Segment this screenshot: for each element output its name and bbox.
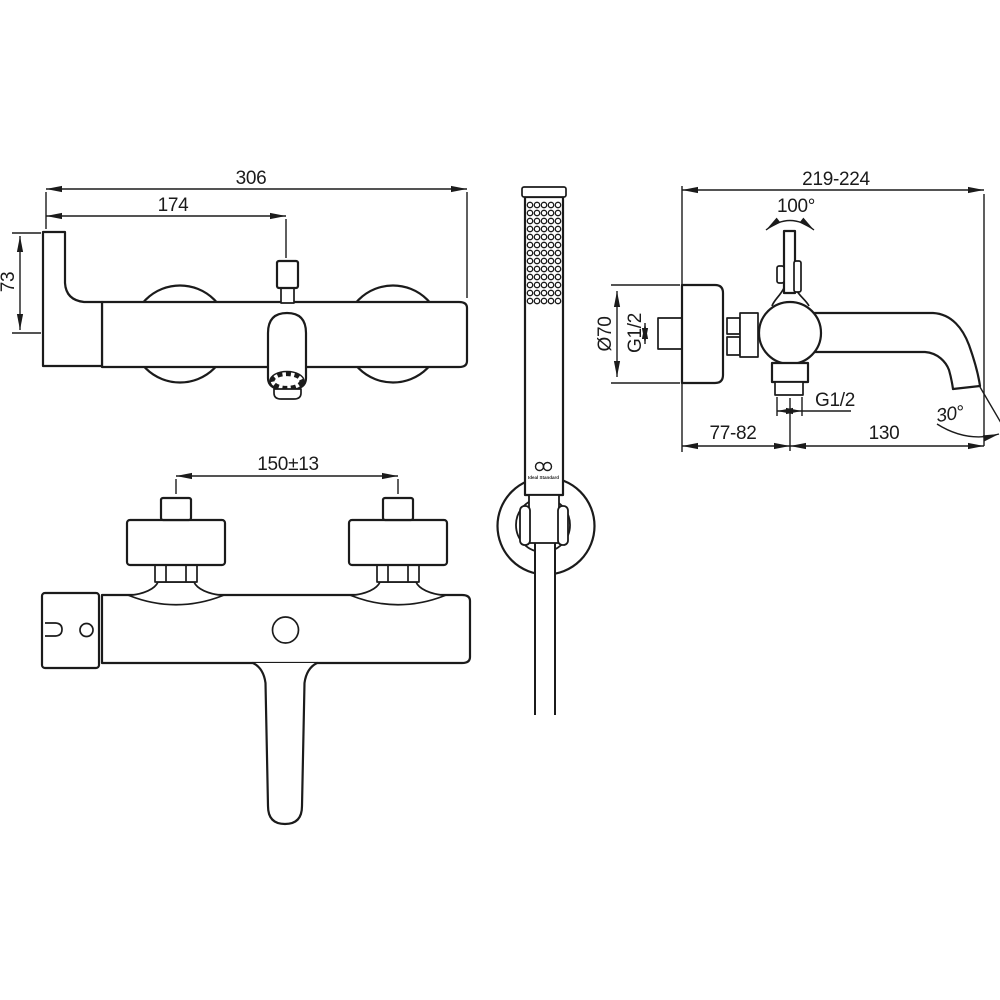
diverter-neck	[281, 287, 294, 303]
spout-angle-arc	[937, 424, 999, 437]
dim-outlet-thread: G1/2	[815, 390, 855, 411]
dim-overall-width: 306	[236, 168, 267, 189]
spout-plan	[253, 663, 317, 824]
dim-inlet-centres: 150±13	[257, 454, 318, 475]
shower-hose	[535, 543, 555, 715]
diverter-knob	[277, 261, 298, 288]
logo-text: Ideal Standard	[528, 475, 559, 480]
dim-wall-to-outlet: 77-82	[709, 423, 756, 444]
lever-side	[772, 231, 809, 306]
spout-side	[814, 313, 980, 389]
dim-spout-angle: 30°	[935, 402, 966, 427]
hook-prong-left	[520, 506, 530, 545]
handle-swing-arc	[766, 221, 814, 231]
left-inlet-assembly	[127, 498, 225, 605]
hand-shower-cap	[522, 187, 566, 197]
bottom-outlet-upper	[772, 363, 808, 382]
dim-handle-height: 73	[0, 272, 19, 293]
diverter-plan	[273, 617, 299, 643]
dim-outlet-to-tip: 130	[869, 423, 900, 444]
plan-dimensions: 150±13	[176, 454, 398, 494]
union-nut-a	[727, 318, 740, 334]
hand-shower: Ideal Standard	[498, 187, 595, 715]
union-nut-b	[727, 337, 740, 355]
dim-inlet-thread: G1/2	[625, 313, 646, 353]
right-inlet-assembly	[349, 498, 447, 605]
wall-escutcheon-side	[682, 285, 723, 383]
side-view: 219-224 100° Ø70 G1/2 G1/2 77-82 130 30°	[595, 169, 1000, 452]
lever-handle-front	[43, 232, 102, 366]
spout-front	[268, 313, 306, 399]
technical-drawing-page: 306 174 73 Ideal Standard	[0, 0, 1000, 1000]
union-nut-c	[740, 313, 758, 357]
dim-diverter-offset: 174	[158, 195, 190, 216]
wall-inlet-pipe	[658, 318, 682, 349]
hook-prong-right	[558, 506, 568, 545]
lever-handle-plan	[42, 593, 99, 668]
bottom-outlet-lower	[775, 382, 803, 395]
spout-angle-leg	[980, 387, 1000, 433]
aerator-collar	[274, 389, 301, 399]
front-view: 306 174 73	[0, 168, 467, 399]
hand-shower-grip	[529, 495, 559, 543]
dim-handle-swing: 100°	[777, 196, 815, 217]
lever-clip	[794, 261, 801, 292]
dim-escutcheon-dia: Ø70	[595, 316, 616, 351]
valve-body-side	[759, 302, 821, 364]
plan-view: 150±13	[42, 454, 470, 824]
dim-wall-to-spout: 219-224	[802, 169, 870, 190]
technical-drawing: 306 174 73 Ideal Standard	[0, 0, 1000, 1000]
